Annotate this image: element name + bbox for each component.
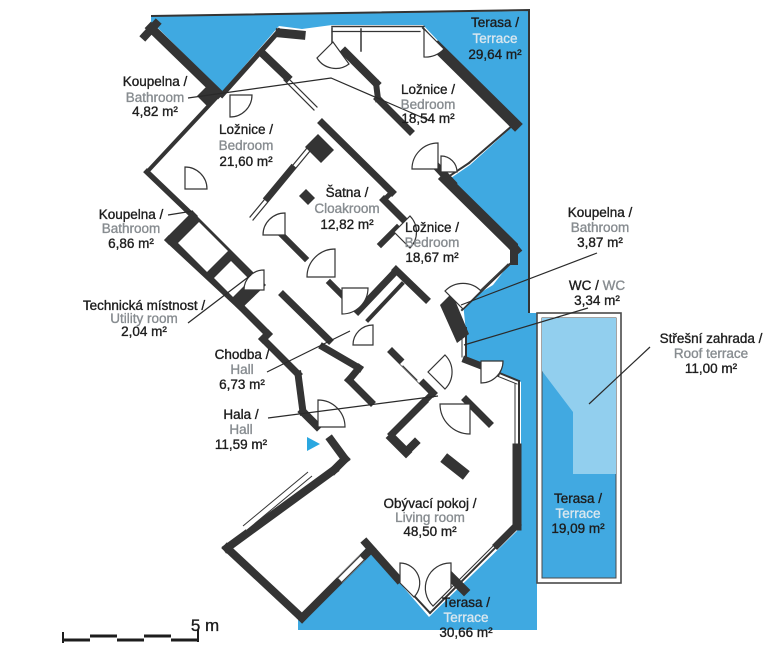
svg-text:5 m: 5 m [191,616,219,635]
svg-text:2,04 m²: 2,04 m² [121,324,167,339]
svg-text:Terasa /: Terasa / [554,491,602,506]
svg-text:Terrace: Terrace [443,610,488,625]
svg-text:Bedroom: Bedroom [405,235,460,250]
svg-text:Bathroom: Bathroom [126,90,185,105]
svg-text:4,82 m²: 4,82 m² [132,104,178,119]
svg-text:Koupelna /: Koupelna / [123,74,188,89]
svg-text:Bathroom: Bathroom [102,221,161,236]
svg-text:Obývací pokoj /: Obývací pokoj / [383,496,476,511]
svg-text:Bathroom: Bathroom [571,220,630,235]
svg-text:18,67 m²: 18,67 m² [405,250,459,265]
svg-text:21,60 m²: 21,60 m² [219,154,273,169]
svg-text:Hall: Hall [230,362,253,377]
svg-text:Bedroom: Bedroom [219,138,274,153]
svg-text:Šatna /: Šatna / [326,185,369,200]
svg-text:Ložnice /: Ložnice / [219,122,273,137]
svg-text:6,73 m²: 6,73 m² [219,377,265,392]
svg-text:30,66 m²: 30,66 m² [439,625,493,640]
svg-text:Terrace: Terrace [555,506,600,521]
svg-text:Střešní zahrada /: Střešní zahrada / [660,331,763,346]
svg-text:Koupelna /: Koupelna / [568,205,633,220]
svg-text:Hala /: Hala / [223,407,259,422]
svg-text:6,86 m²: 6,86 m² [108,236,154,251]
svg-text:Terasa /: Terasa / [471,15,519,30]
svg-text:Roof terrace: Roof terrace [674,346,748,361]
svg-text:WC / WC: WC / WC [569,278,625,293]
svg-text:3,34 m²: 3,34 m² [574,293,620,308]
svg-text:Ložnice /: Ložnice / [405,220,459,235]
svg-text:Terrace: Terrace [472,31,517,46]
svg-text:18,54 m²: 18,54 m² [401,111,455,126]
svg-text:48,50 m²: 48,50 m² [403,524,457,539]
svg-text:Living room: Living room [395,510,465,525]
svg-text:3,87 m²: 3,87 m² [577,235,623,250]
svg-text:Terasa /: Terasa / [442,595,490,610]
svg-text:Bedroom: Bedroom [401,97,456,112]
svg-text:11,59 m²: 11,59 m² [215,437,268,452]
svg-text:Cloakroom: Cloakroom [314,201,379,216]
svg-text:Hall: Hall [229,422,252,437]
svg-text:Chodba /: Chodba / [215,347,270,362]
svg-text:29,64 m²: 29,64 m² [468,47,522,62]
svg-text:11,00 m²: 11,00 m² [685,361,738,376]
svg-text:Koupelna /: Koupelna / [99,207,164,222]
svg-text:19,09 m²: 19,09 m² [551,521,605,536]
svg-text:Ložnice /: Ložnice / [401,82,455,97]
svg-text:12,82 m²: 12,82 m² [320,217,374,232]
